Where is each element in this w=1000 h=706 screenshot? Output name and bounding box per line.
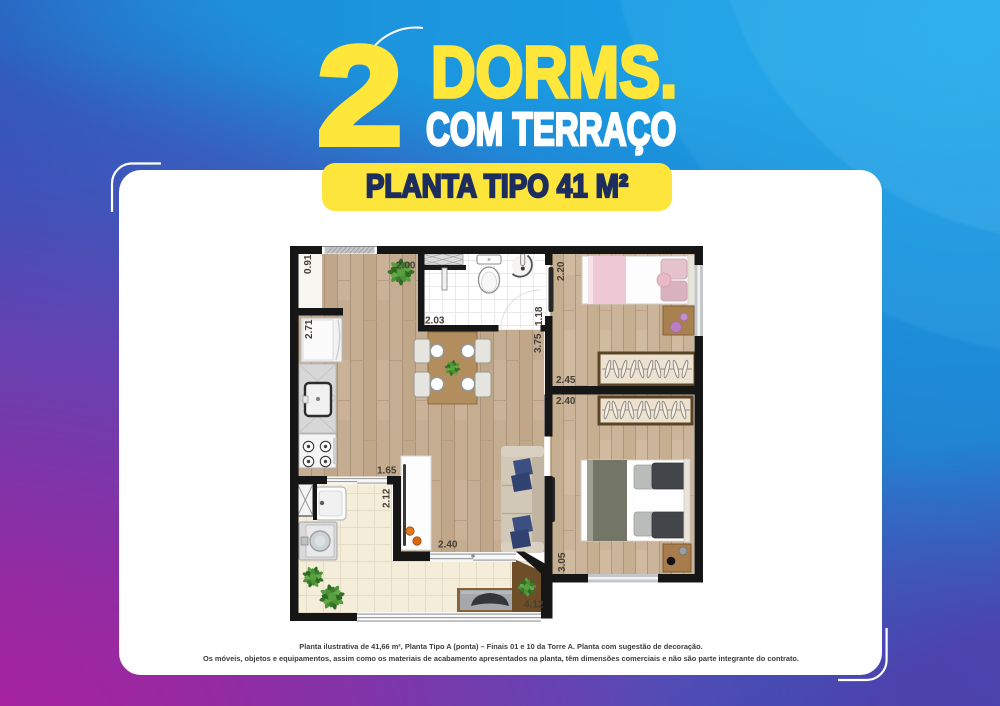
svg-text:2.03: 2.03 [425,316,445,327]
svg-text:2.40: 2.40 [438,540,458,551]
svg-text:3.05: 3.05 [557,552,568,572]
svg-text:1.65: 1.65 [377,466,397,477]
svg-text:2.12: 2.12 [382,488,393,508]
svg-text:4.12: 4.12 [524,600,544,611]
svg-text:2.45: 2.45 [556,375,576,386]
svg-text:1.18: 1.18 [534,306,545,326]
svg-text:2.40: 2.40 [556,396,576,407]
svg-text:2.00: 2.00 [396,261,416,272]
svg-text:0.91: 0.91 [303,254,314,274]
svg-text:2.20: 2.20 [556,261,567,281]
svg-text:2.71: 2.71 [304,319,315,339]
svg-text:3.75: 3.75 [533,333,544,353]
